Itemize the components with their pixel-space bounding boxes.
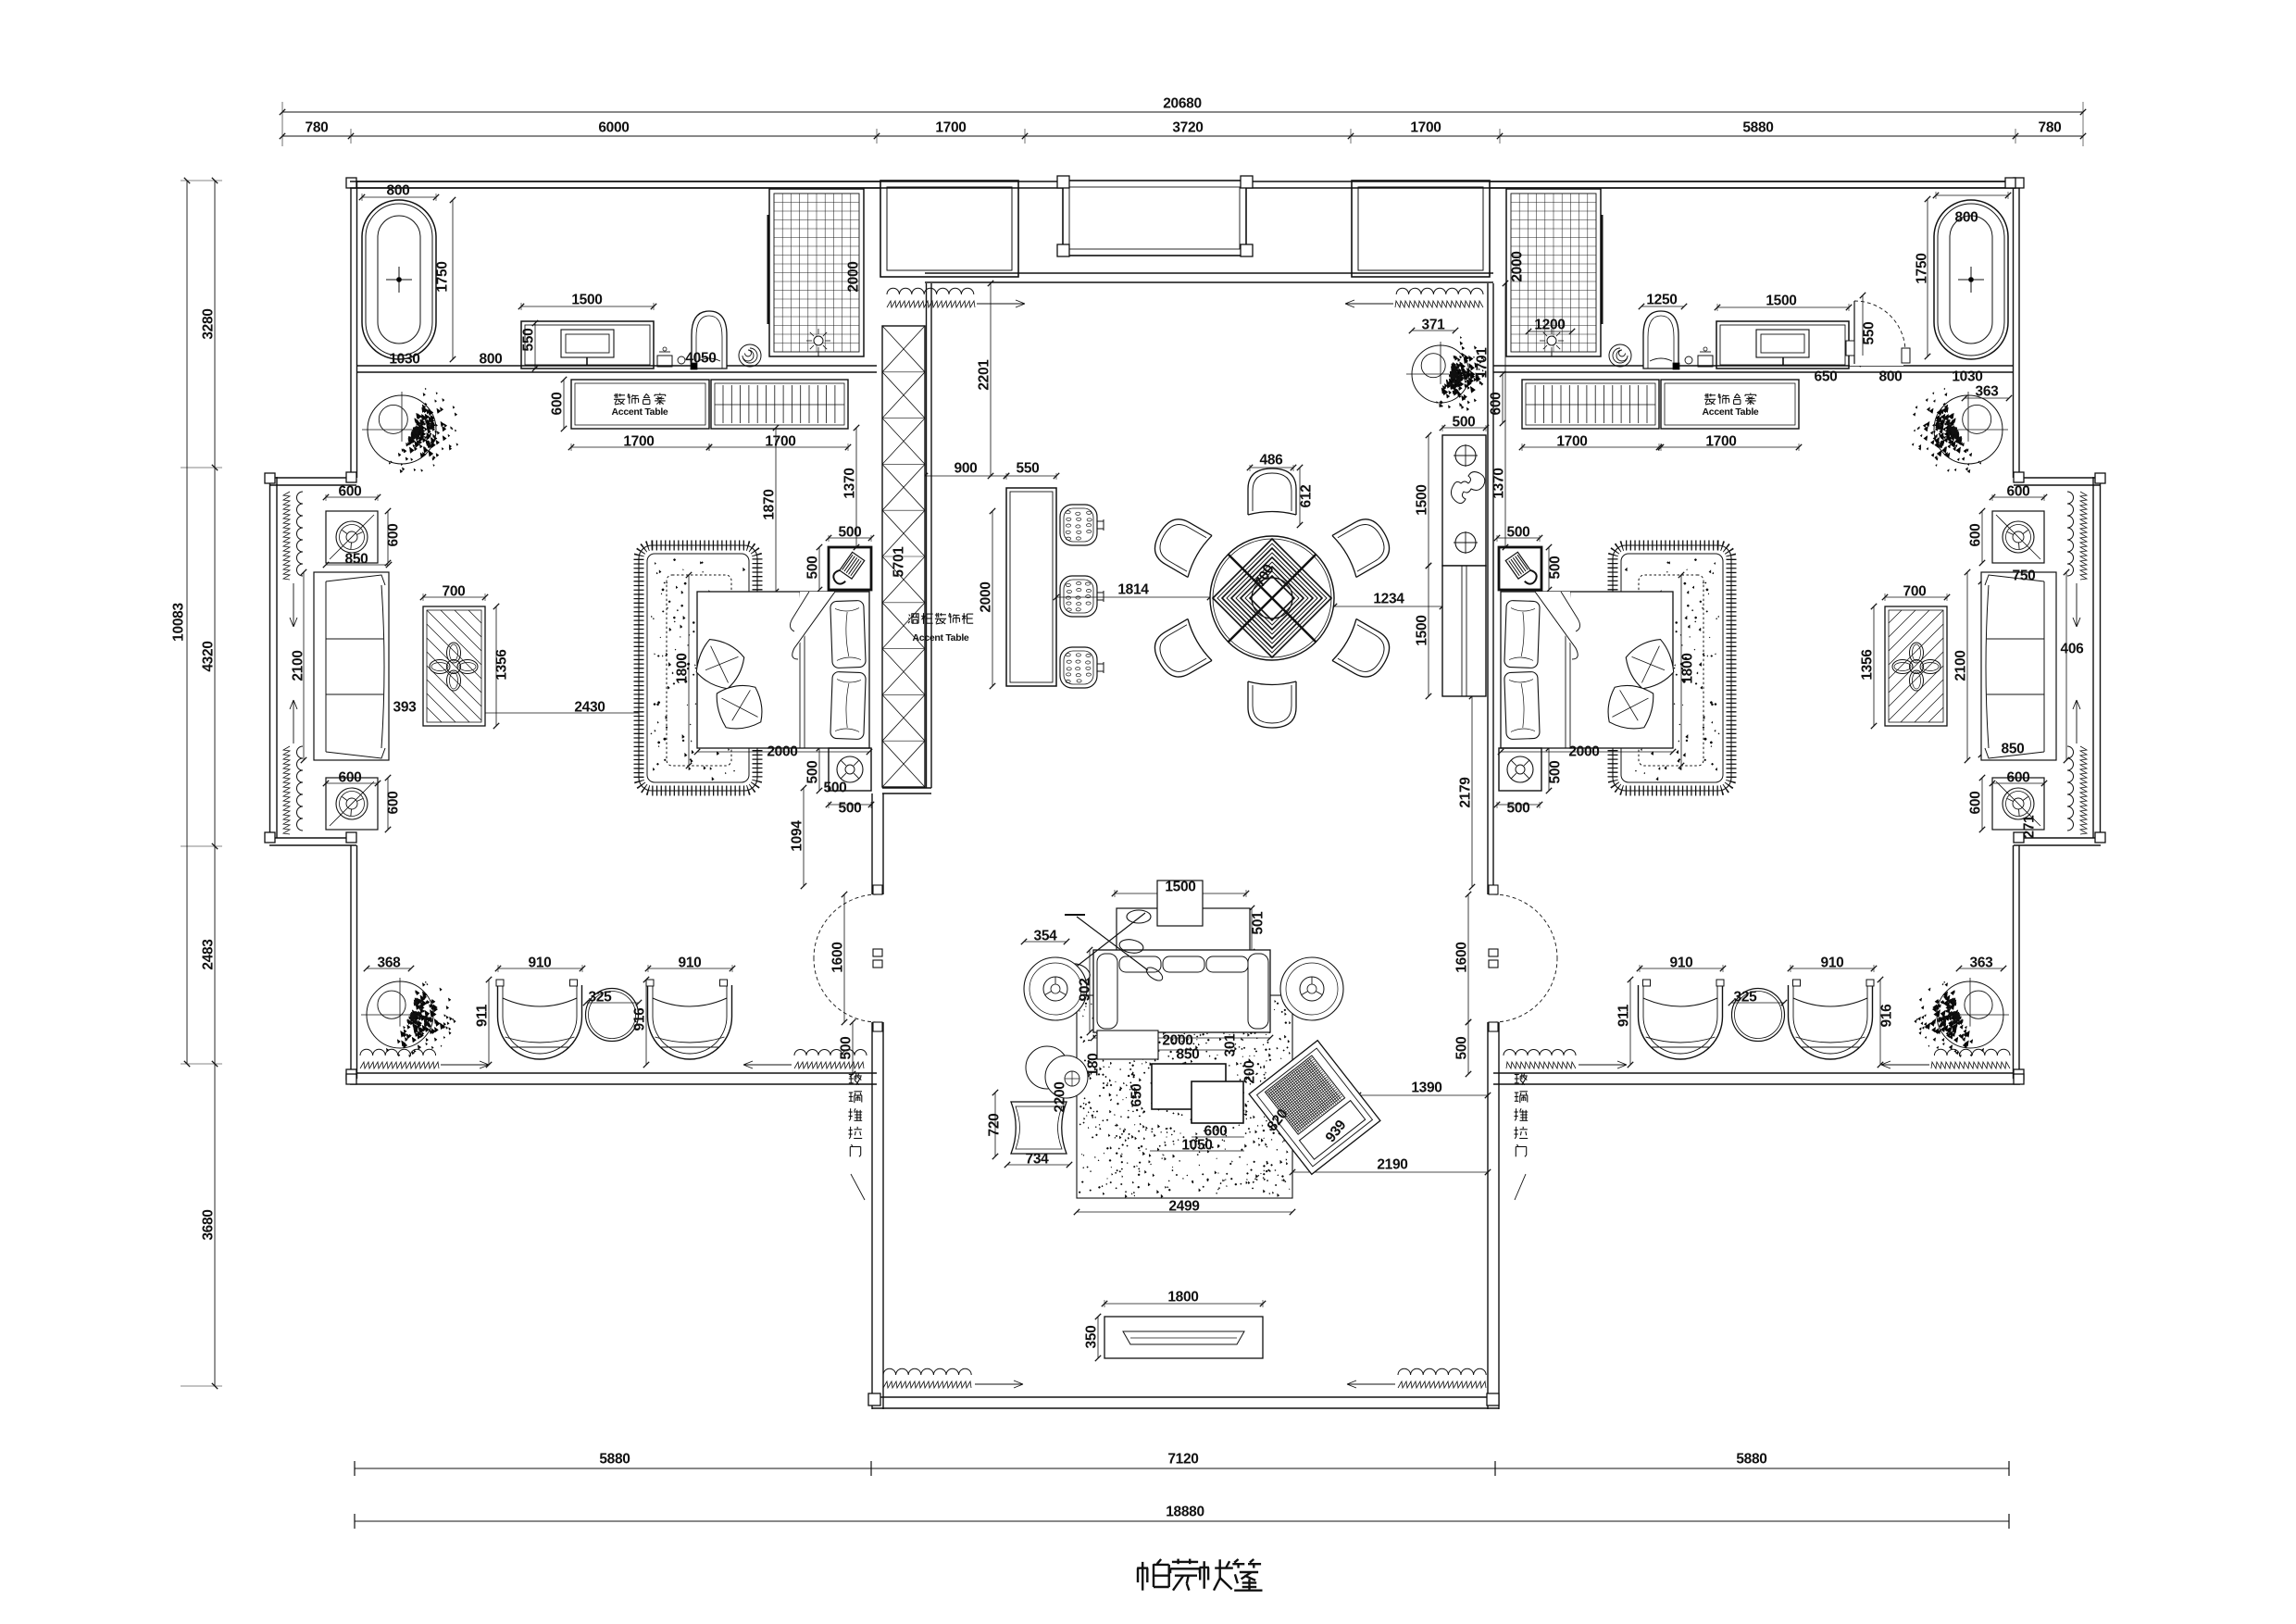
svg-text:1700: 1700	[623, 434, 654, 450]
svg-text:6000: 6000	[598, 120, 629, 136]
svg-text:Accent Table: Accent Table	[913, 632, 969, 643]
svg-text:2100: 2100	[291, 650, 306, 681]
svg-text:2000: 2000	[1510, 251, 1526, 281]
svg-text:354: 354	[1034, 929, 1058, 944]
svg-text:750: 750	[2013, 568, 2036, 584]
svg-text:500: 500	[805, 556, 821, 580]
svg-text:1200: 1200	[1534, 318, 1565, 333]
svg-text:350: 350	[1084, 1326, 1100, 1349]
svg-text:1030: 1030	[1952, 369, 1982, 385]
svg-text:850: 850	[2002, 742, 2025, 757]
svg-text:20680: 20680	[1163, 96, 1202, 112]
svg-text:800: 800	[1955, 210, 1978, 226]
svg-text:1500: 1500	[1165, 880, 1195, 895]
svg-text:500: 500	[1507, 525, 1530, 541]
svg-text:1250: 1250	[1646, 293, 1677, 308]
svg-text:1700: 1700	[1410, 120, 1441, 136]
svg-text:720: 720	[987, 1114, 1003, 1137]
svg-text:1500: 1500	[1415, 484, 1430, 515]
svg-text:1814: 1814	[1117, 582, 1149, 598]
svg-text:600: 600	[550, 393, 566, 416]
svg-text:3280: 3280	[201, 308, 217, 339]
svg-text:363: 363	[1970, 956, 1994, 971]
svg-text:1390: 1390	[1411, 1081, 1441, 1096]
svg-text:4320: 4320	[201, 641, 217, 671]
svg-text:7120: 7120	[1167, 1452, 1198, 1468]
svg-text:501: 501	[1251, 911, 1267, 935]
svg-text:800: 800	[387, 183, 410, 199]
svg-text:780: 780	[306, 120, 329, 136]
svg-text:1700: 1700	[765, 434, 795, 450]
svg-text:916: 916	[632, 1007, 648, 1031]
svg-text:600: 600	[1489, 393, 1504, 416]
svg-text:1356: 1356	[494, 649, 510, 681]
svg-text:500: 500	[839, 801, 862, 817]
svg-text:900: 900	[955, 461, 978, 477]
svg-text:2201: 2201	[977, 359, 992, 391]
svg-text:2430: 2430	[574, 700, 605, 716]
svg-text:2100: 2100	[1953, 650, 1969, 681]
svg-text:500: 500	[824, 781, 847, 796]
svg-text:800: 800	[480, 352, 503, 368]
svg-text:368: 368	[378, 956, 402, 971]
svg-text:325: 325	[1734, 990, 1758, 1006]
svg-text:3680: 3680	[201, 1209, 217, 1240]
svg-text:2483: 2483	[201, 939, 217, 970]
svg-text:1800: 1800	[1167, 1290, 1198, 1305]
svg-text:5880: 5880	[599, 1452, 630, 1468]
svg-text:700: 700	[1903, 584, 1927, 600]
svg-text:1370: 1370	[1491, 468, 1507, 498]
svg-text:2000: 2000	[979, 581, 994, 612]
svg-text:916: 916	[1879, 1004, 1895, 1028]
svg-text:734: 734	[1026, 1152, 1050, 1168]
svg-text:Accent Table: Accent Table	[612, 406, 668, 418]
svg-text:363: 363	[1976, 384, 2000, 400]
svg-text:650: 650	[1129, 1084, 1145, 1107]
svg-text:550: 550	[521, 329, 537, 352]
svg-text:1500: 1500	[1415, 615, 1430, 645]
svg-text:910: 910	[1670, 956, 1693, 971]
svg-text:550: 550	[1862, 322, 1878, 345]
svg-text:910: 910	[529, 956, 552, 971]
svg-text:406: 406	[2061, 642, 2085, 657]
svg-text:5701: 5701	[892, 546, 907, 578]
svg-text:1870: 1870	[762, 489, 778, 519]
svg-text:550: 550	[1017, 461, 1040, 477]
svg-text:500: 500	[1548, 556, 1564, 580]
svg-text:10083: 10083	[171, 603, 187, 642]
svg-text:486: 486	[1260, 453, 1284, 468]
svg-text:911: 911	[1616, 1004, 1632, 1027]
svg-text:612: 612	[1299, 485, 1315, 508]
svg-text:1600: 1600	[830, 942, 846, 972]
svg-text:5880: 5880	[1742, 120, 1773, 136]
svg-text:2000: 2000	[767, 744, 797, 760]
svg-text:2179: 2179	[1458, 777, 1474, 808]
svg-text:5880: 5880	[1736, 1452, 1766, 1468]
svg-text:2499: 2499	[1168, 1199, 1200, 1215]
svg-text:500: 500	[1507, 801, 1530, 817]
svg-text:500: 500	[805, 761, 821, 784]
svg-text:1600: 1600	[1454, 942, 1470, 972]
svg-text:910: 910	[1821, 956, 1844, 971]
svg-text:1700: 1700	[1556, 434, 1587, 450]
svg-text:1701: 1701	[1475, 347, 1491, 379]
svg-text:850: 850	[1177, 1047, 1200, 1063]
svg-text:3720: 3720	[1172, 120, 1203, 136]
svg-text:800: 800	[1879, 369, 1903, 385]
svg-text:200: 200	[1242, 1061, 1258, 1084]
svg-text:1030: 1030	[389, 352, 419, 368]
svg-text:2200: 2200	[1053, 1081, 1068, 1112]
svg-text:600: 600	[339, 770, 362, 786]
svg-text:902: 902	[1078, 979, 1093, 1002]
svg-text:393: 393	[393, 700, 418, 716]
svg-text:600: 600	[1968, 792, 1984, 815]
svg-text:911: 911	[475, 1004, 491, 1027]
svg-text:180: 180	[1086, 1054, 1102, 1077]
svg-text:1700: 1700	[1705, 434, 1736, 450]
svg-text:700: 700	[443, 584, 466, 600]
svg-text:600: 600	[2007, 770, 2030, 786]
svg-text:1370: 1370	[842, 468, 858, 498]
svg-text:650: 650	[1815, 369, 1838, 385]
svg-text:600: 600	[386, 792, 402, 815]
svg-text:500: 500	[839, 525, 862, 541]
svg-text:500: 500	[1548, 761, 1564, 784]
svg-text:2000: 2000	[1568, 744, 1599, 760]
svg-text:1750: 1750	[1915, 253, 1930, 283]
svg-text:2190: 2190	[1377, 1157, 1407, 1173]
svg-text:600: 600	[2007, 484, 2030, 500]
svg-text:18880: 18880	[1166, 1505, 1204, 1520]
svg-text:500: 500	[839, 1037, 855, 1060]
svg-text:1500: 1500	[571, 293, 602, 308]
svg-text:1050: 1050	[1181, 1138, 1212, 1154]
svg-text:600: 600	[386, 524, 402, 547]
svg-text:600: 600	[339, 484, 362, 500]
svg-text:271: 271	[2022, 815, 2038, 839]
svg-text:600: 600	[1968, 524, 1984, 547]
svg-text:1800: 1800	[675, 653, 691, 683]
svg-text:2000: 2000	[846, 261, 862, 292]
svg-text:910: 910	[679, 956, 702, 971]
svg-text:Accent Table: Accent Table	[1703, 406, 1759, 418]
svg-text:850: 850	[345, 552, 368, 568]
svg-text:325: 325	[589, 990, 613, 1006]
svg-text:1234: 1234	[1373, 592, 1404, 607]
svg-text:1700: 1700	[935, 120, 966, 136]
svg-text:1750: 1750	[435, 261, 451, 292]
svg-text:371: 371	[1422, 318, 1446, 333]
svg-text:4050: 4050	[685, 351, 716, 367]
svg-text:1500: 1500	[1766, 294, 1796, 309]
svg-text:500: 500	[1454, 1037, 1470, 1060]
svg-text:1800: 1800	[1680, 653, 1696, 683]
svg-text:1094: 1094	[790, 820, 805, 852]
svg-text:780: 780	[2039, 120, 2062, 136]
svg-text:500: 500	[1453, 415, 1476, 431]
svg-text:1356: 1356	[1860, 649, 1876, 681]
svg-text:301: 301	[1223, 1033, 1239, 1057]
